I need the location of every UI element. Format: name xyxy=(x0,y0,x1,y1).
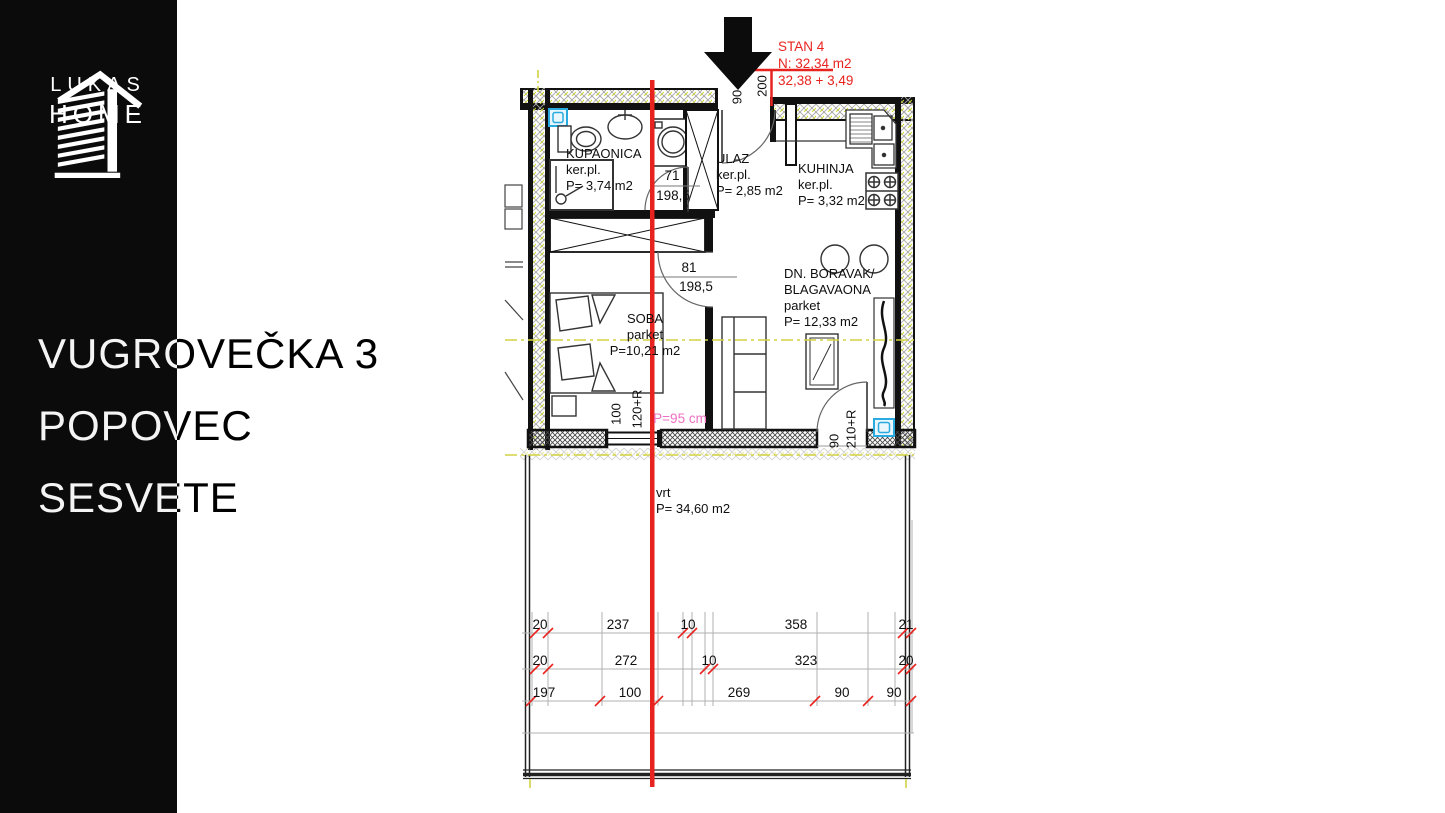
unit-net-area: N: 32,34 m2 xyxy=(778,55,853,72)
room-label-kuhinja: KUHINJA ker.pl. P= 3,32 m2 xyxy=(798,161,865,209)
section-cut-line xyxy=(650,80,655,787)
address-district: POPOVEC xyxy=(38,390,379,462)
dim-r2-5: 20 xyxy=(898,653,913,668)
stove-icon xyxy=(866,173,898,209)
unit-info-block: STAN 4 N: 32,34 m2 32,38 + 3,49 xyxy=(778,38,853,89)
room-label-dnevni-boravak: DN. BORAVAK/ BLAGAVAONA parket P= 12,33 … xyxy=(784,266,875,330)
dim-r3-3: 269 xyxy=(728,685,751,700)
soba-door-width: 81 xyxy=(681,260,696,275)
address-street: VUGROVEČKA 3 xyxy=(38,318,379,390)
dim-r2-2: 272 xyxy=(615,653,638,668)
unit-area-sum: 32,38 + 3,49 xyxy=(778,72,853,89)
nightstand-icon xyxy=(552,396,576,416)
coffee-table-icon xyxy=(806,334,838,389)
dim-r1-2: 237 xyxy=(607,617,630,632)
window-width: 100 xyxy=(609,403,624,425)
washbasin-icon xyxy=(608,110,642,139)
sofa-icon xyxy=(722,317,766,429)
dim-r3-2: 100 xyxy=(619,685,642,700)
entry-door-width: 90 xyxy=(730,90,745,104)
entry-door-height: 200 xyxy=(755,75,770,97)
soba-door-height: 198,5 xyxy=(679,279,713,294)
balcony-door-width: 90 xyxy=(827,434,842,448)
floor-drain-icon xyxy=(549,109,567,126)
bath-door-width: 71 xyxy=(664,168,679,183)
dim-r1-1: 20 xyxy=(532,617,547,632)
room-label-ulaz: ULAZ ker.pl. P= 2,85 m2 xyxy=(716,151,783,199)
dimension-ticks xyxy=(526,628,916,706)
balcony-door-height: 210+R xyxy=(844,410,859,449)
room-label-kupaonica: KUPAONICA ker.pl. P= 3,74 m2 xyxy=(566,146,642,194)
dim-r3-5: 90 xyxy=(886,685,901,700)
window-height: 120+R xyxy=(630,390,645,429)
dim-r2-3: 10 xyxy=(701,653,716,668)
window-parapet-height: P=95 cm xyxy=(653,411,707,426)
dim-r1-4: 358 xyxy=(785,617,808,632)
project-address: VUGROVEČKA 3 POPOVEC SESVETE xyxy=(38,318,379,534)
floorplan-page: LUKAS HOME VUGROVEČKA 3 POPOVEC SESVETE xyxy=(0,0,1445,813)
room-label-vrt: vrt P= 34,60 m2 xyxy=(656,485,730,517)
dim-r3-1: 197 xyxy=(533,685,556,700)
room-label-soba: SOBA parket P=10,21 m2 xyxy=(610,311,680,359)
dim-r2-4: 323 xyxy=(795,653,818,668)
kitchen-sink-icon xyxy=(850,114,872,144)
floor-drain-icon xyxy=(874,419,894,436)
neighbour-unit-fragments xyxy=(505,185,523,400)
radiator-icon xyxy=(874,298,894,408)
dim-r1-5: 21 xyxy=(898,617,913,632)
address-city: SESVETE xyxy=(38,462,379,534)
bath-door-height: 198,5 xyxy=(656,188,690,203)
dim-r3-4: 90 xyxy=(834,685,849,700)
unit-title: STAN 4 xyxy=(778,38,853,55)
dim-r1-3: 10 xyxy=(680,617,695,632)
dim-r2-1: 20 xyxy=(532,653,547,668)
